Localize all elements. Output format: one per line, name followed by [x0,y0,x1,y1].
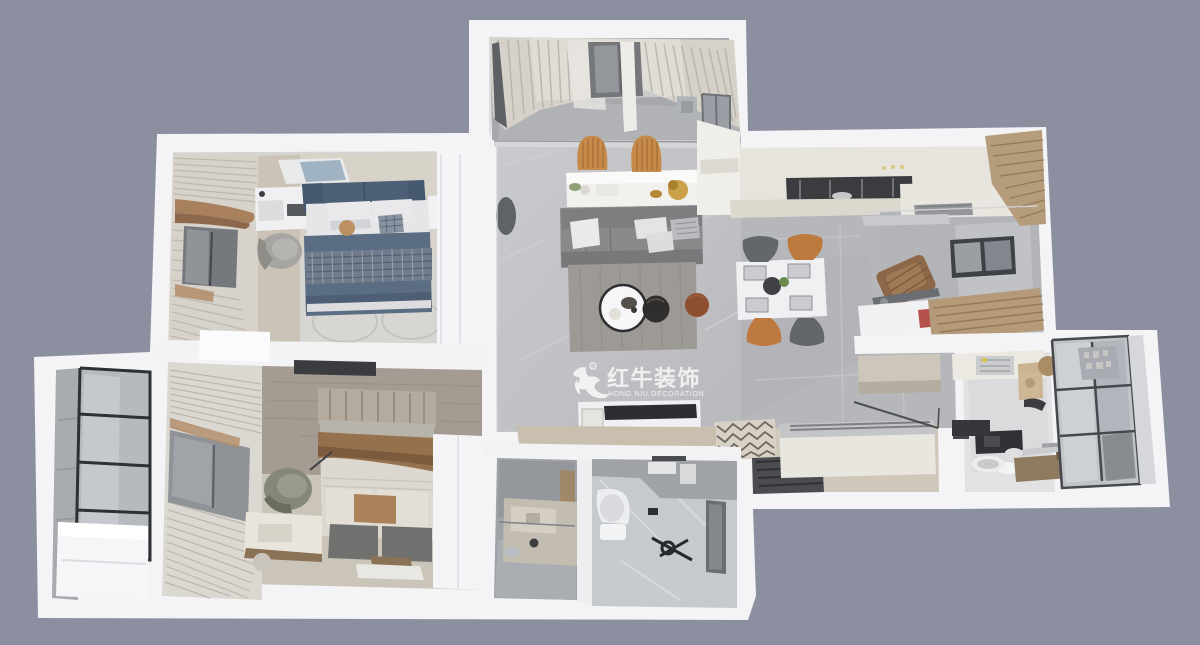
svg-text:R: R [591,365,595,371]
svg-text:HONG NIU DECORATION: HONG NIU DECORATION [608,391,704,398]
svg-text:红牛装饰: 红牛装饰 [607,366,701,391]
